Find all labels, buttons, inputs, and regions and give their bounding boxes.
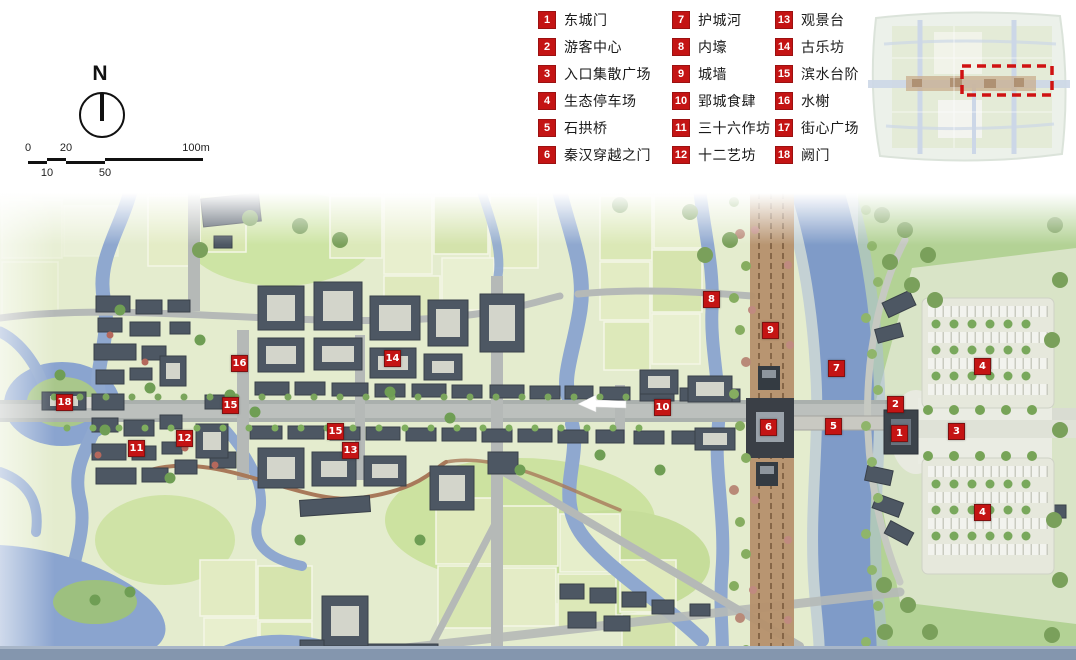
legend-number-badge: 11 [672, 119, 690, 137]
legend-number-badge: 3 [538, 65, 556, 83]
legend-label: 入口集散广场 [564, 64, 651, 84]
scale-segment [66, 161, 105, 164]
map-marker-10: 10 [654, 399, 671, 416]
map-marker-15: 15 [327, 423, 344, 440]
scale-segment [28, 161, 47, 164]
legend-item-18: 18阙门 [775, 147, 859, 163]
scale-segment [105, 158, 203, 161]
left-fade [0, 193, 55, 660]
map-marker-4: 4 [974, 504, 991, 521]
legend-item-12: 12十二艺坊 [672, 147, 771, 163]
overview-minimap [864, 4, 1074, 172]
bottom-water-strip [0, 649, 1076, 660]
legend-column-2: 7护城河8内壕9城墙10郢城食肆11三十六作坊12十二艺坊 [672, 12, 771, 163]
legend-label: 十二艺坊 [698, 145, 756, 165]
legend-label: 街心广场 [801, 118, 859, 138]
scale-bar: 0 20 100m 10 50 [28, 142, 203, 180]
map-marker-18: 18 [56, 394, 73, 411]
map-marker-4: 4 [974, 358, 991, 375]
map-marker-15: 15 [222, 397, 239, 414]
legend-number-badge: 12 [672, 146, 690, 164]
legend-number-badge: 17 [775, 119, 793, 137]
legend-label: 生态停车场 [564, 91, 637, 111]
legend-item-8: 8内壕 [672, 39, 771, 55]
legend-label: 古乐坊 [801, 37, 845, 57]
scale-label-20: 20 [60, 142, 72, 154]
legend-item-3: 3入口集散广场 [538, 66, 651, 82]
masterplan-page: N 0 20 100m 10 50 1东城门2游客中心3入口集散广场4生态停车场… [0, 0, 1076, 660]
legend-label: 水榭 [801, 91, 830, 111]
legend-number-badge: 18 [775, 146, 793, 164]
map-marker-6: 6 [760, 419, 777, 436]
legend-number-badge: 2 [538, 38, 556, 56]
map-marker-9: 9 [762, 322, 779, 339]
map-marker-7: 7 [828, 360, 845, 377]
scale-label-0: 0 [25, 142, 31, 154]
map-marker-14: 14 [384, 350, 401, 367]
map-marker-13: 13 [342, 442, 359, 459]
legend-label: 郢城食肆 [698, 91, 756, 111]
legend-label: 游客中心 [564, 37, 622, 57]
legend-label: 滨水台阶 [801, 64, 859, 84]
compass-north-label: N [92, 62, 107, 86]
legend-label: 城墙 [698, 64, 727, 84]
legend-number-badge: 5 [538, 119, 556, 137]
map-marker-11: 11 [128, 440, 145, 457]
legend-item-11: 11三十六作坊 [672, 120, 771, 136]
map-marker-5: 5 [825, 418, 842, 435]
legend-number-badge: 10 [672, 92, 690, 110]
scale-segment [47, 158, 66, 161]
legend-label: 护城河 [698, 10, 742, 30]
map-marker-1: 1 [891, 425, 908, 442]
legend-column-3: 13观景台14古乐坊15滨水台阶16水榭17街心广场18阙门 [775, 12, 859, 163]
legend-label: 阙门 [801, 145, 830, 165]
map-marker-3: 3 [948, 423, 965, 440]
legend-number-badge: 13 [775, 11, 793, 29]
legend-item-6: 6秦汉穿越之门 [538, 147, 651, 163]
scale-label-100m: 100m [182, 142, 210, 154]
masterplan-rendering [0, 193, 1076, 660]
legend-item-5: 5石拱桥 [538, 120, 651, 136]
legend-label: 石拱桥 [564, 118, 608, 138]
legend-item-13: 13观景台 [775, 12, 859, 28]
scale-label-10: 10 [41, 167, 53, 179]
legend-item-1: 1东城门 [538, 12, 651, 28]
legend-number-badge: 1 [538, 11, 556, 29]
legend-label: 秦汉穿越之门 [564, 145, 651, 165]
legend-column-1: 1东城门2游客中心3入口集散广场4生态停车场5石拱桥6秦汉穿越之门 [538, 12, 651, 163]
shore-line [0, 646, 1076, 649]
legend-number-badge: 8 [672, 38, 690, 56]
legend-number-badge: 7 [672, 11, 690, 29]
top-fade [0, 193, 1076, 245]
legend-item-4: 4生态停车场 [538, 93, 651, 109]
legend-item-10: 10郢城食肆 [672, 93, 771, 109]
legend-item-2: 2游客中心 [538, 39, 651, 55]
legend-item-7: 7护城河 [672, 12, 771, 28]
legend-number-badge: 16 [775, 92, 793, 110]
legend-item-17: 17街心广场 [775, 120, 859, 136]
legend-label: 观景台 [801, 10, 845, 30]
compass-needle [100, 93, 104, 121]
legend-item-14: 14古乐坊 [775, 39, 859, 55]
map-marker-12: 12 [176, 430, 193, 447]
map-marker-8: 8 [703, 291, 720, 308]
legend-item-16: 16水榭 [775, 93, 859, 109]
scale-label-50: 50 [99, 167, 111, 179]
compass-icon [79, 92, 125, 138]
masterplan-map: 1234456789101112131415151618 郢城·市 「一过城门，… [0, 193, 1076, 660]
legend-number-badge: 6 [538, 146, 556, 164]
legend-number-badge: 14 [775, 38, 793, 56]
map-marker-2: 2 [887, 396, 904, 413]
map-marker-16: 16 [231, 355, 248, 372]
legend-label: 三十六作坊 [698, 118, 771, 138]
legend-item-9: 9城墙 [672, 66, 771, 82]
legend-item-15: 15滨水台阶 [775, 66, 859, 82]
legend-number-badge: 15 [775, 65, 793, 83]
legend-number-badge: 9 [672, 65, 690, 83]
legend-number-badge: 4 [538, 92, 556, 110]
legend-label: 东城门 [564, 10, 608, 30]
legend-label: 内壕 [698, 37, 727, 57]
